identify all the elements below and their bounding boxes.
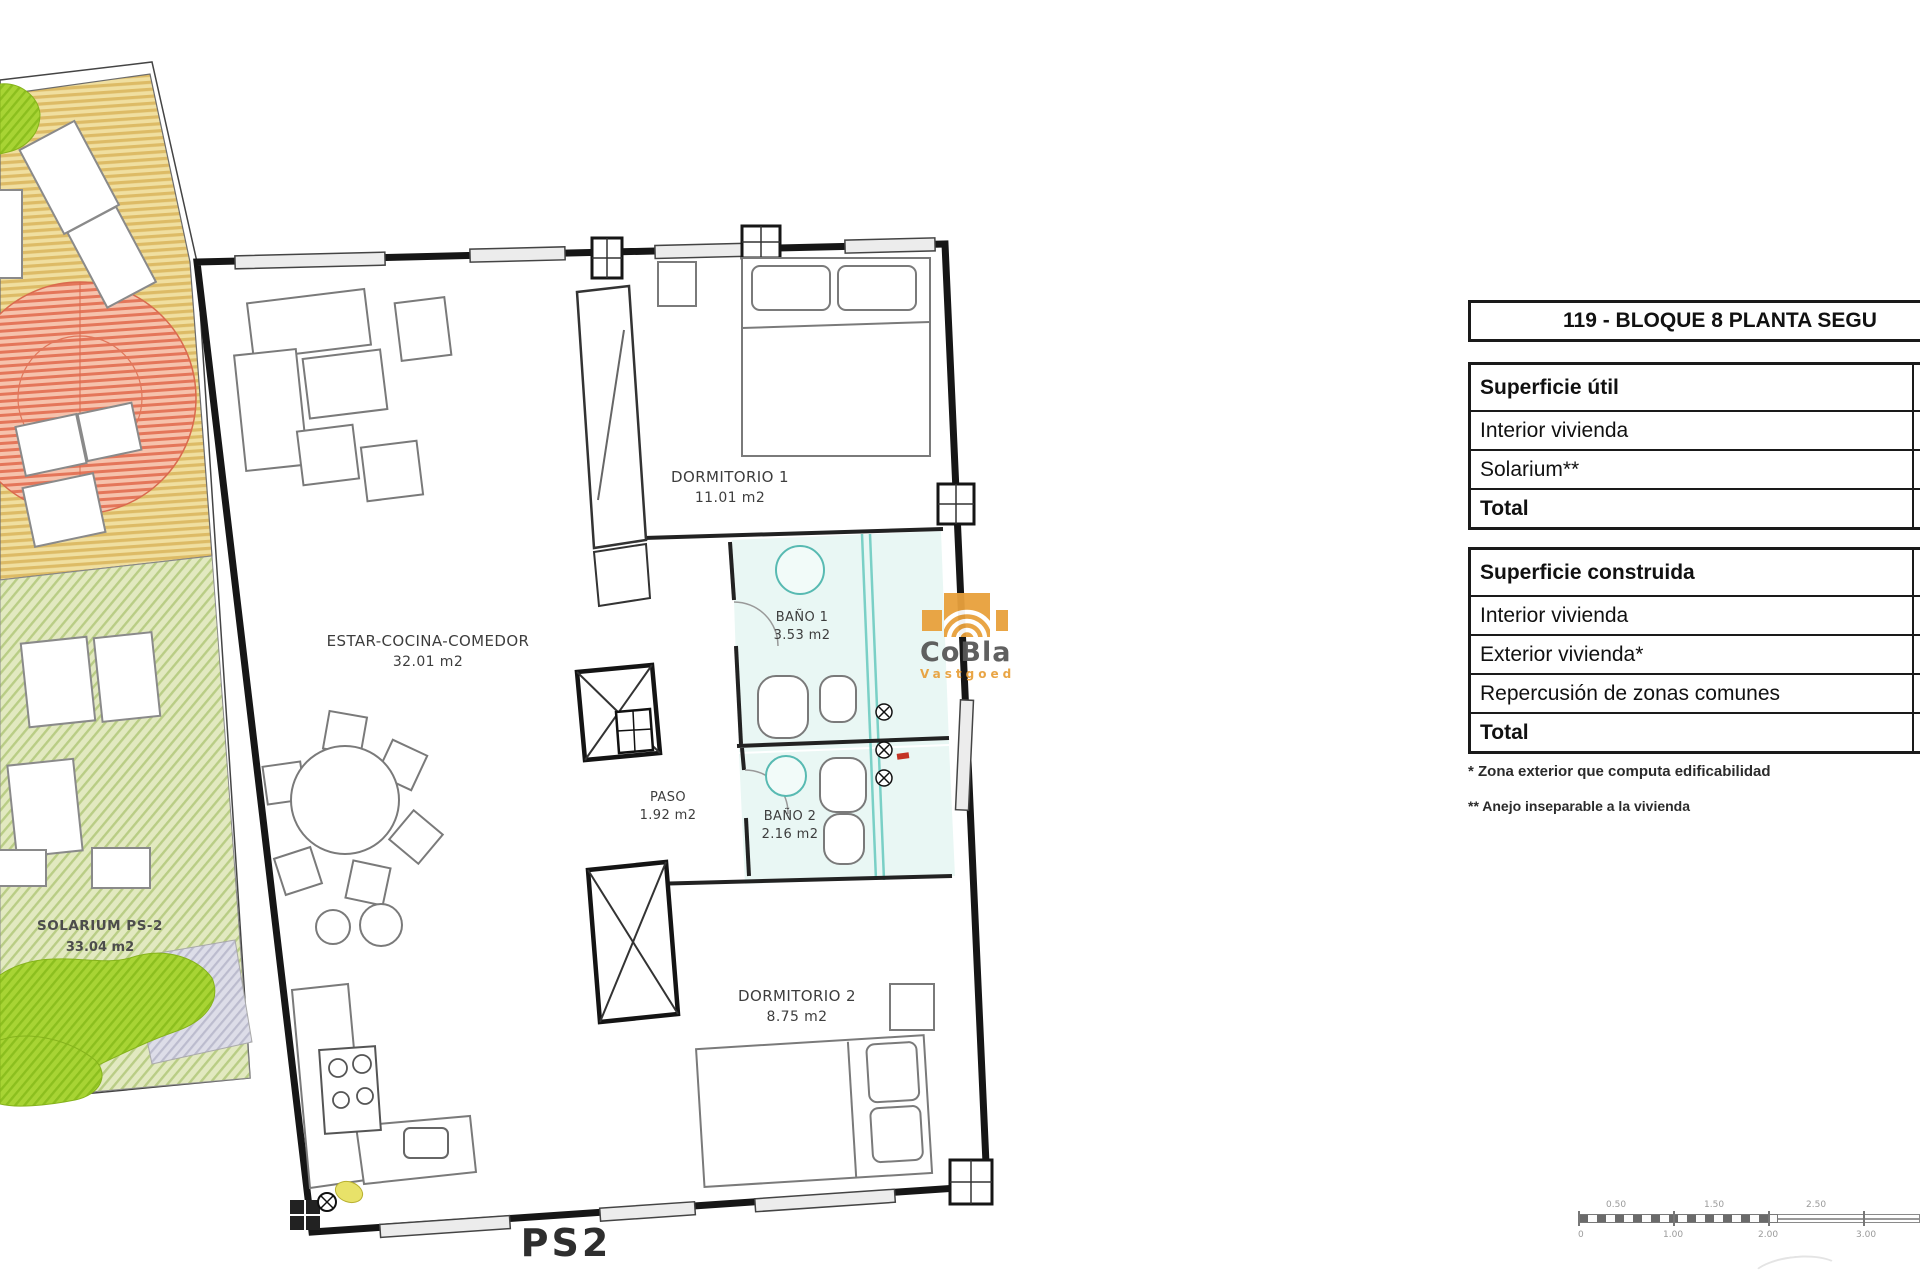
room-label-living: ESTAR-COCINA-COMEDOR [327,632,530,650]
row-label: Interior vivienda [1480,419,1628,443]
basin2 [824,814,864,864]
watermark: CoBla Vastgoed [920,592,1008,680]
room-area-living: 32.01 m2 [393,654,463,670]
superficie-util-table: Superficie útil Interior vivienda Solari… [1468,362,1920,530]
table-header-label: Superficie útil [1480,376,1619,400]
scale-tick [1673,1211,1675,1226]
table-header-superficie-construida: Superficie construida [1471,550,1920,595]
solarium-terrace: SOLARIUM PS-2 33.04 m2 [0,62,252,1106]
bidet1 [820,676,856,722]
shower1 [776,546,824,594]
watermark-subtitle: Vastgoed [920,668,1008,680]
superficie-construida-table: Superficie construida Interior vivienda … [1468,547,1920,754]
shower2 [766,756,806,796]
row-label: Interior vivienda [1480,604,1628,628]
row-label: Repercusión de zonas comunes [1480,682,1780,706]
table-row-total-util: Total [1471,488,1920,527]
room-label-bed1: DORMITORIO 1 [671,468,789,486]
logo-left-square [922,610,942,631]
table-row-repercusion-zonas-comunes: Repercusión de zonas comunes [1471,673,1920,712]
table-header-label: Superficie construida [1480,561,1695,585]
scale-bar-line [1778,1214,1920,1223]
row-label: Total [1480,497,1529,521]
graphic-scale-bar: 0.50 1.50 2.50 0 1.00 2.00 3.00 [1578,1200,1920,1246]
table-row-total-construida: Total [1471,712,1920,751]
table-row-exterior-vivienda: Exterior vivienda* [1471,634,1920,673]
scale-tick [1578,1211,1580,1226]
toilet2 [820,758,866,812]
plan-title-box: 119 - BLOQUE 8 PLANTA SEGU [1468,300,1920,342]
stair-shaft-lower [588,862,678,1022]
room-label-bath1: BAÑO 1 [776,609,829,625]
faint-watermark-arc [1748,1251,1843,1280]
floor-plan: SOLARIUM PS-2 33.04 m2 [0,0,1220,1280]
room-area-bath1: 3.53 m2 [774,628,831,643]
room-area-bath2: 2.16 m2 [762,827,819,842]
watermark-brand: CoBla [920,639,1008,666]
room-area-paso: 1.92 m2 [640,808,697,823]
scale-label-upper: 2.50 [1806,1200,1826,1210]
room-label-bed2: DORMITORIO 2 [738,987,856,1005]
scale-tick [1768,1211,1770,1226]
room-label-paso: PASO [650,790,686,805]
plan-title-text: 119 - BLOQUE 8 PLANTA SEGU [1563,309,1877,333]
scale-label-lower: 0 [1578,1230,1584,1240]
room-area-solarium: 33.04 m2 [66,940,134,955]
scale-tick [1863,1211,1865,1226]
room-area-bed2: 8.75 m2 [767,1009,828,1025]
logo-right-square [996,610,1008,631]
footnote-exterior: * Zona exterior que computa edificabilid… [1468,763,1771,780]
row-label: Exterior vivienda* [1480,643,1643,667]
room-area-bed1: 11.01 m2 [695,490,765,506]
scale-label-lower: 3.00 [1856,1230,1876,1240]
room-label-solarium: SOLARIUM PS-2 [37,918,163,934]
entry-symbol [318,1193,336,1211]
scale-bar-checker [1578,1214,1778,1223]
plan-title-label: PS2 [521,1221,612,1265]
logo-arcs-icon [944,593,990,637]
stove [319,1046,381,1134]
footnote-anejo: ** Anejo inseparable a la vivienda [1468,798,1690,814]
row-label: Total [1480,721,1529,745]
room-label-bath2: BAÑO 2 [764,808,817,824]
table-header-superficie-util: Superficie útil [1471,365,1920,410]
table-row-interior-vivienda: Interior vivienda [1471,410,1920,449]
row-label: Solarium** [1480,458,1579,482]
scale-label-lower: 2.00 [1758,1230,1778,1240]
toilet1 [758,676,808,738]
watermark-logo-icon [920,592,1008,638]
table-row-solarium: Solarium** [1471,449,1920,488]
table-row-interior-vivienda-2: Interior vivienda [1471,595,1920,634]
screenshot-canvas: SOLARIUM PS-2 33.04 m2 [0,0,1920,1280]
scale-label-upper: 0.50 [1606,1200,1626,1210]
stair-shaft-upper [577,665,660,760]
scale-label-lower: 1.00 [1663,1230,1683,1240]
kitchen-sink [404,1128,448,1158]
scale-label-upper: 1.50 [1704,1200,1724,1210]
